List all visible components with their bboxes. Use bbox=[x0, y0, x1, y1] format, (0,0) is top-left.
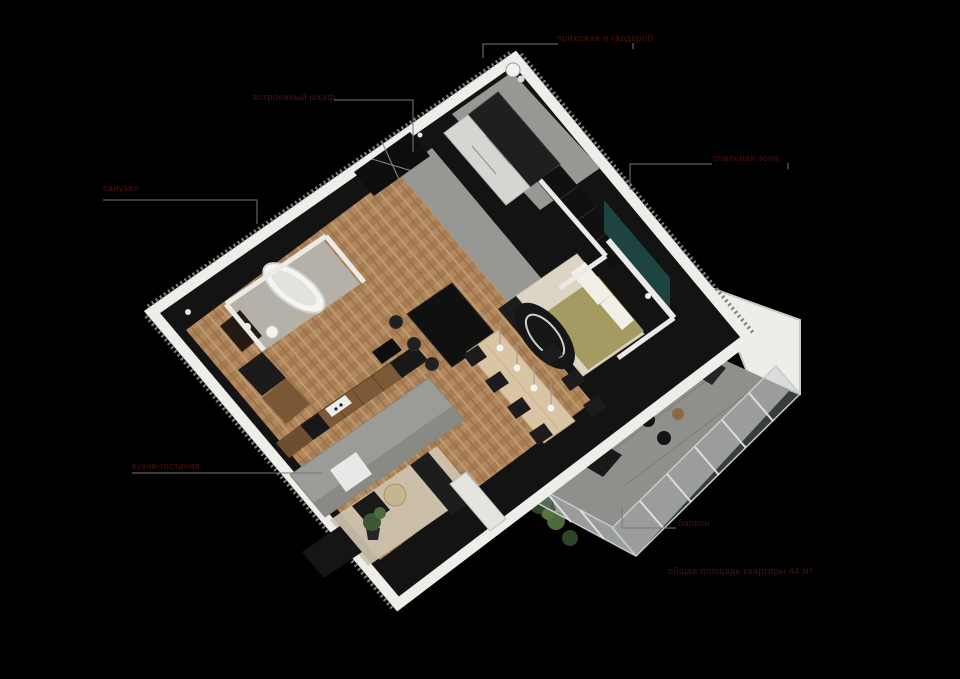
leader-bathroom bbox=[103, 200, 257, 224]
label-balcony: балкон bbox=[678, 518, 710, 528]
apartment-render bbox=[0, 0, 960, 679]
floor-plan-scene: прихожая и гардероб встроенный шкаф сану… bbox=[0, 0, 960, 679]
coffee-table-round bbox=[384, 484, 406, 506]
toilet bbox=[266, 326, 278, 338]
label-wardrobe: встроенный шкаф bbox=[253, 92, 335, 102]
balcony-chair bbox=[657, 431, 671, 445]
leader-bedroom bbox=[630, 164, 712, 190]
label-bedroom: спальная зона bbox=[713, 153, 779, 163]
label-bathroom: санузел bbox=[103, 183, 139, 193]
balcony-table bbox=[672, 408, 684, 420]
label-total-area: общая площадь квартиры 44 м² bbox=[668, 566, 812, 576]
label-entry: прихожая и гардероб bbox=[557, 33, 653, 43]
label-livingroom: кухня-гостиная bbox=[132, 461, 200, 471]
